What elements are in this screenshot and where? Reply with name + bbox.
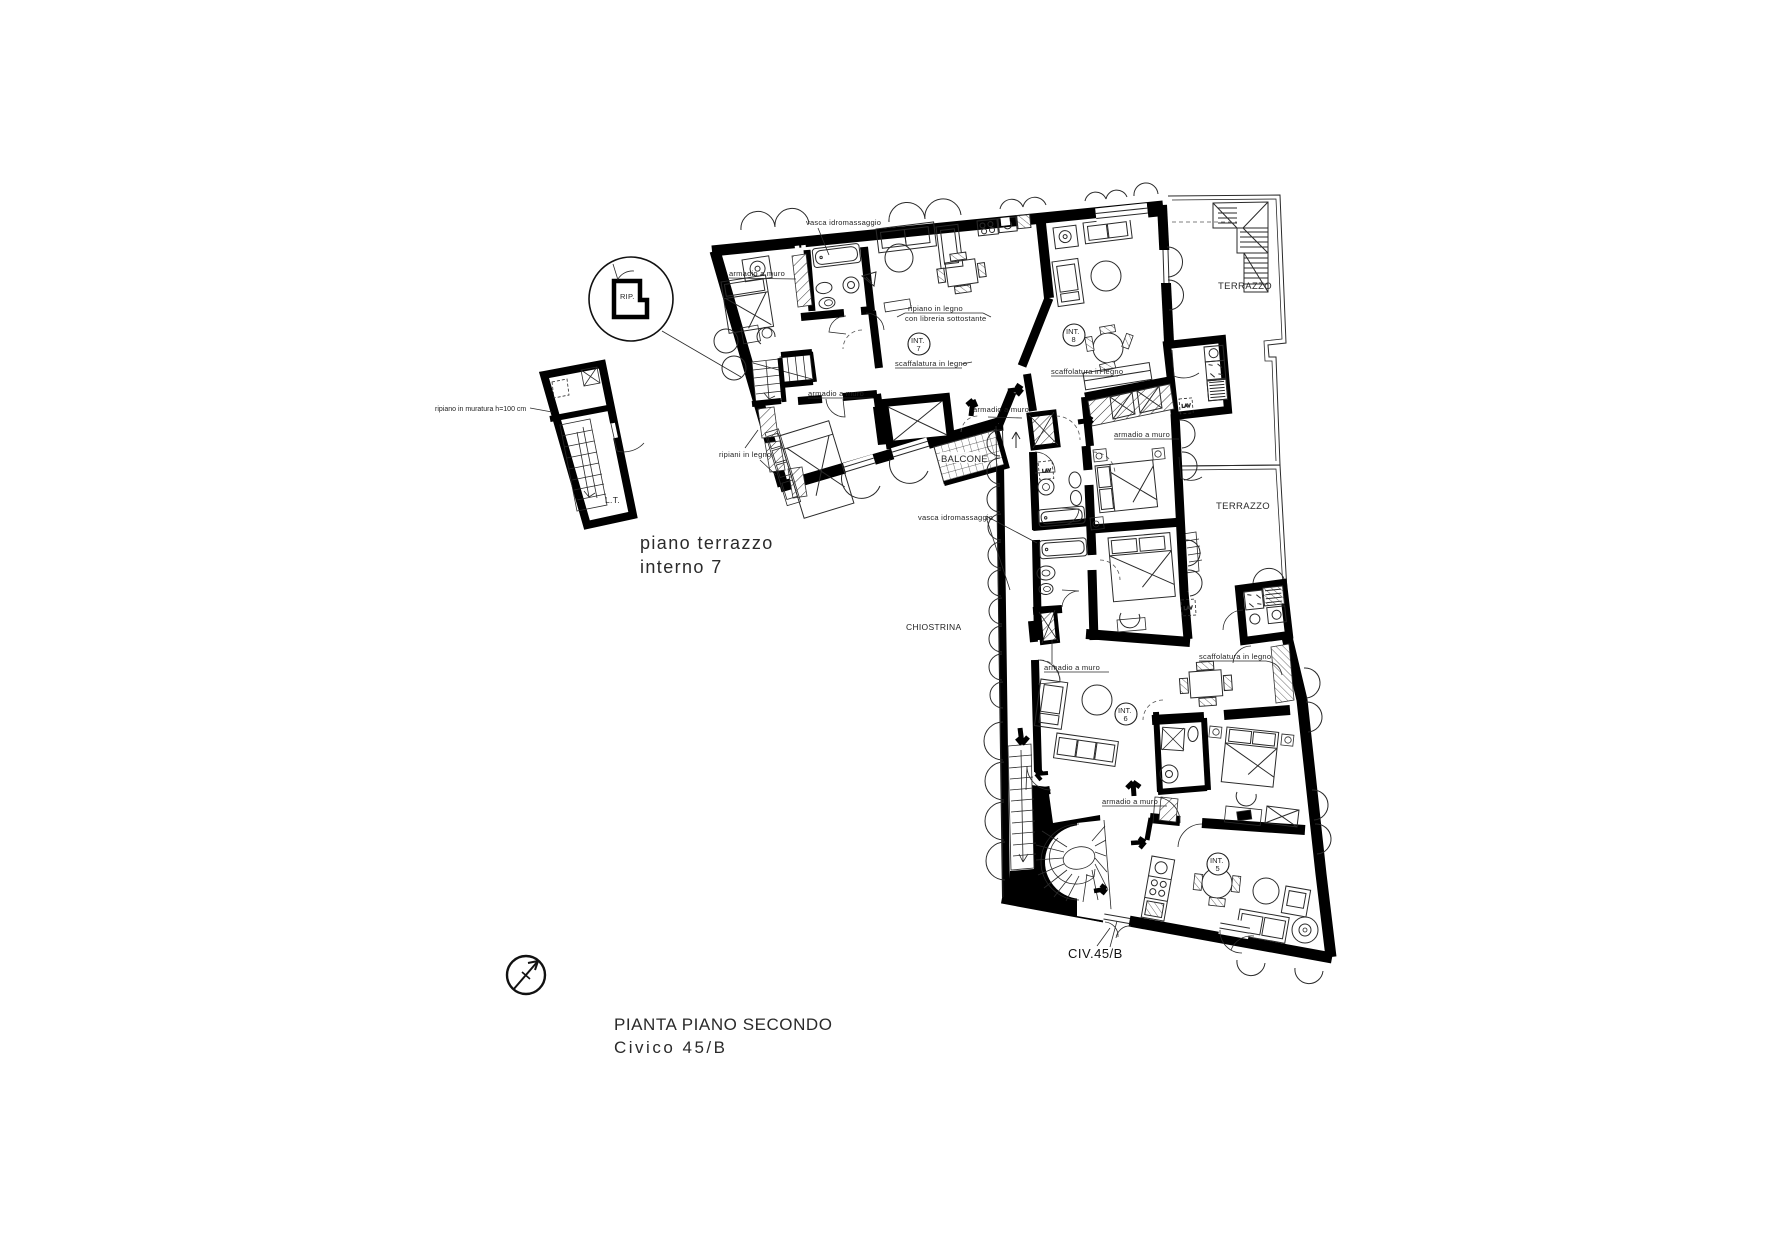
svg-text:armadio a muro: armadio a muro — [729, 269, 785, 278]
svg-text:Civico 45/B: Civico 45/B — [614, 1038, 727, 1057]
svg-text:LAV: LAV — [1042, 468, 1052, 475]
svg-text:con libreria sottostante: con libreria sottostante — [905, 314, 986, 323]
svg-text:scaffolatura in legno: scaffolatura in legno — [1051, 367, 1123, 376]
svg-text:LAV: LAV — [1183, 605, 1193, 612]
svg-text:7: 7 — [917, 344, 921, 353]
svg-text:armadio a muro: armadio a muro — [1102, 797, 1158, 806]
svg-text:8: 8 — [1072, 335, 1076, 344]
svg-text:armadio a muro: armadio a muro — [973, 405, 1029, 414]
svg-text:vasca idromassaggio: vasca idromassaggio — [918, 513, 993, 522]
svg-text:5: 5 — [1216, 864, 1220, 873]
svg-text:LAV: LAV — [1181, 403, 1191, 410]
svg-text:6: 6 — [1124, 714, 1128, 723]
svg-text:BALCONE: BALCONE — [941, 454, 988, 465]
svg-text:CIV.45/B: CIV.45/B — [1068, 946, 1123, 961]
svg-text:RIP.: RIP. — [620, 292, 635, 301]
svg-text:interno 7: interno 7 — [640, 557, 723, 577]
svg-text:armadio a muro: armadio a muro — [1044, 663, 1100, 672]
svg-text:TERRAZZO: TERRAZZO — [1218, 281, 1272, 292]
svg-text:PIANTA PIANO SECONDO: PIANTA PIANO SECONDO — [614, 1015, 833, 1034]
svg-text:ripiani in legno: ripiani in legno — [719, 450, 771, 459]
svg-text:CHIOSTRINA: CHIOSTRINA — [906, 622, 961, 632]
svg-text:scaffalatura in legno: scaffalatura in legno — [895, 359, 967, 368]
svg-text:armadio a muro: armadio a muro — [808, 389, 864, 398]
svg-text:ripiano in muratura h=100 cm: ripiano in muratura h=100 cm — [435, 406, 526, 413]
svg-text:armadio a muro: armadio a muro — [1114, 430, 1170, 439]
svg-text:TERRAZZO: TERRAZZO — [1216, 501, 1270, 512]
svg-text:piano terrazzo: piano terrazzo — [640, 533, 774, 553]
svg-text:vasca idromassaggio: vasca idromassaggio — [806, 218, 881, 227]
svg-text:ripiano in legno: ripiano in legno — [908, 304, 963, 313]
svg-text:L.T.: L.T. — [605, 495, 620, 505]
svg-text:scaffolatura in legno: scaffolatura in legno — [1199, 652, 1271, 661]
